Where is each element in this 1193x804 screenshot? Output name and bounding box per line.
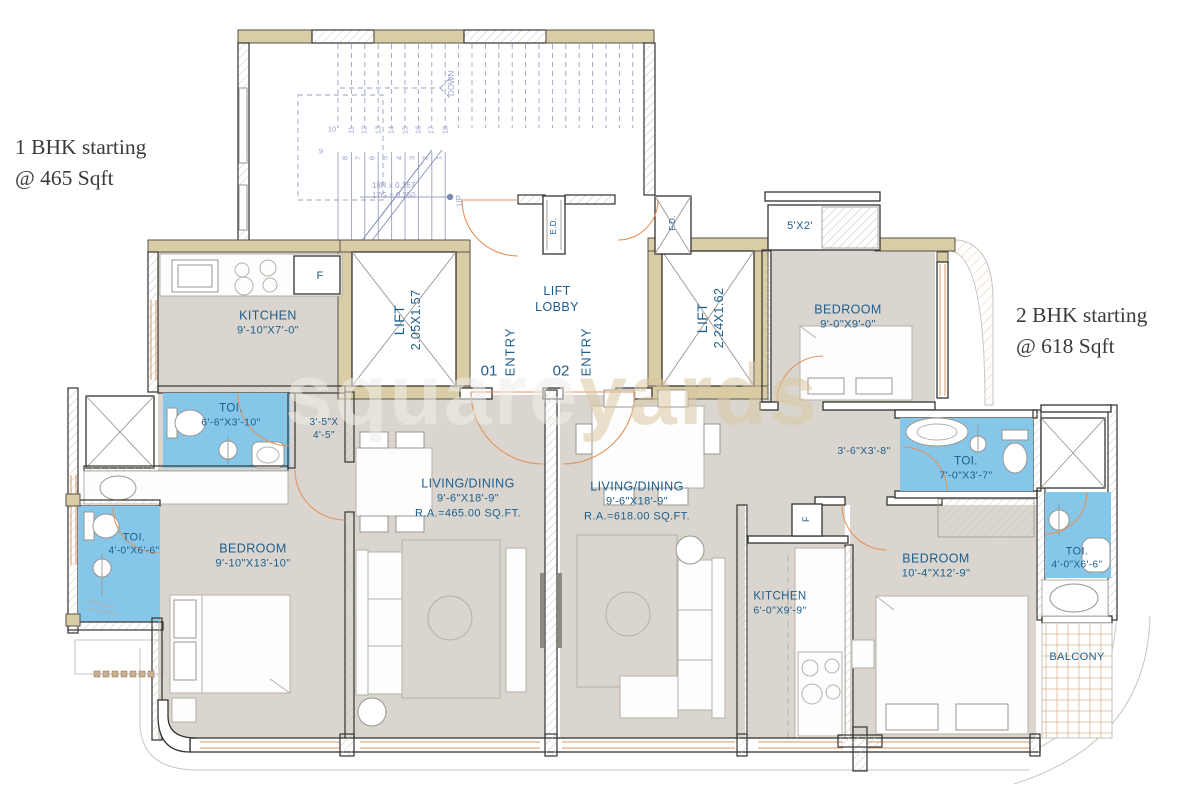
stair-note2: 17G x 0.250 [372, 191, 416, 200]
floor-plan-page: squareyards 1 BHK starting @ 465 Sqft 2 … [0, 0, 1193, 804]
fridge1-label: F [316, 269, 323, 283]
kitchen2-label: KITCHEN 6'-0"X9'-9" [753, 590, 806, 619]
toilet-left2-label: TOI. 4'-0"X6'-6" [109, 530, 160, 557]
niche-5x2 [768, 205, 880, 250]
toilet-right2-label: TOI. 4'-0"X6'-6" [1052, 544, 1103, 571]
stair-treads-upper [338, 44, 633, 128]
nightstand-right [852, 640, 874, 668]
lift2-label: LIFT 2.24X1.62 [693, 288, 727, 349]
rounded-corner-top-right [950, 240, 993, 405]
bedroom-right-label: BEDROOM 10'-4"X12'-9" [902, 551, 971, 582]
lift1-label: LIFT 2.05X1.57 [390, 290, 424, 351]
sofa2-back [712, 558, 725, 718]
stair-note1: 18R x 0.167 [372, 181, 415, 190]
niche-label: 5'X2' [787, 219, 813, 233]
entry1-number: 01 [481, 363, 498, 380]
headline-2bhk-line1: 2 BHK starting [1016, 300, 1147, 331]
passage-right-label: 3'-6"X3'-8" [837, 445, 890, 459]
ed-label: E.D. [549, 218, 559, 235]
toilet-left1-label: TOI. 6'-6"X3'-10" [201, 402, 260, 431]
fd-label: F.D. [668, 215, 678, 230]
bedroom-top-right-window [937, 262, 948, 398]
ledge-dots [94, 671, 154, 677]
entry2-number: 02 [553, 363, 570, 380]
wardrobe-bedroom-right [938, 499, 1034, 537]
wardrobe-right [1041, 418, 1105, 488]
sofa1-back [356, 550, 368, 695]
living1-label: LIVING/DINING 9'-6"X18'-9" R.A.=465.00 S… [415, 476, 521, 521]
staircase-block [238, 30, 655, 245]
bedroom-left-label: BEDROOM 9'-10"X13'-10" [215, 541, 290, 572]
bedroom-top-right-label: BEDROOM 9'-0"X9'-0" [814, 302, 881, 333]
vanity-right [1042, 580, 1108, 616]
tv-unit-1 [506, 548, 526, 692]
headline-1bhk-line1: 1 BHK starting [15, 132, 146, 163]
tv-2 [558, 573, 562, 648]
stair-number-10: 10 [328, 125, 336, 134]
stair-number-9: 9 [319, 147, 323, 156]
headline-1bhk-line2: @ 465 Sqft [15, 163, 146, 194]
balcony-label: BALCONY [1049, 650, 1104, 664]
balcony [1042, 623, 1112, 738]
fridge2-label: F [801, 516, 813, 522]
kitchen1-label: KITCHEN 9'-10"X7'-0" [237, 308, 299, 339]
toilet-right1-label: TOI. 7'-0"X3'-7" [939, 455, 992, 484]
lift-lobby-label: LIFT LOBBY [535, 283, 579, 316]
watermark-word2: yards [579, 347, 819, 443]
headline-1bhk: 1 BHK starting @ 465 Sqft [15, 132, 146, 194]
nightstand-left [172, 698, 196, 722]
stair-up-label: UP [455, 195, 464, 206]
headline-2bhk-line2: @ 618 Sqft [1016, 331, 1147, 362]
entry1-label: ENTRY [503, 328, 518, 377]
stair-down-label: DOWN [447, 71, 456, 96]
passage-left-label: 3'-5"X 4'-5" [310, 416, 339, 442]
living2-label: LIVING/DINING 9'-6"X18'-9" R.A.=618.00 S… [584, 479, 690, 524]
tv-1 [540, 573, 544, 648]
entry2-label: ENTRY [579, 328, 594, 377]
headline-2bhk: 2 BHK starting @ 618 Sqft [1016, 300, 1147, 362]
